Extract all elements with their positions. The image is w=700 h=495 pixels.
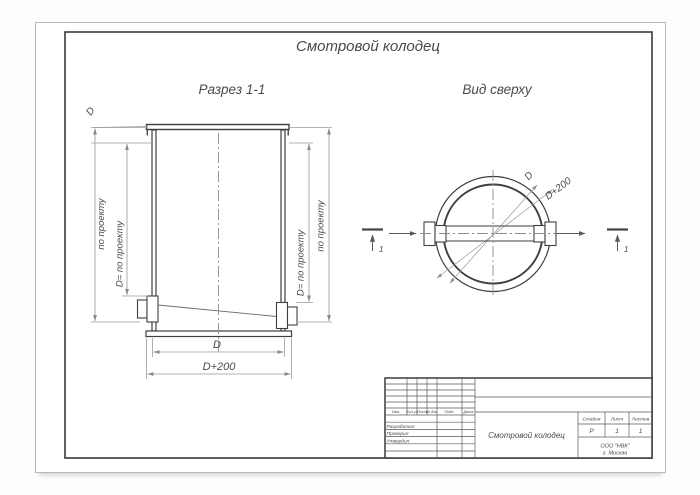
pipe-flange-right (288, 307, 298, 325)
lid-edge-hooks (147, 130, 288, 136)
role-developer: Разработал (387, 424, 415, 430)
org-city: г. Москва (603, 451, 628, 457)
titleblock-doc-name: Смотровой колодец (488, 431, 565, 440)
sheet-value: 1 (615, 428, 619, 435)
plan-dim-label-d200: D+200 (543, 175, 574, 202)
sheets-label: Листов (631, 417, 650, 423)
stage-header: Стадия Лист Листов (583, 417, 650, 423)
channel-slope-line (158, 305, 277, 317)
dim-label-d: D (213, 339, 221, 351)
stage-value: Р (589, 428, 594, 435)
dim-label-right-outer: по проекту (316, 199, 327, 252)
section-mark-left: 1 (362, 230, 383, 255)
organization-cell: ООО "НВК" г. Москва (600, 444, 630, 457)
plan-dim-label-d: D (523, 170, 536, 183)
svg-text:Кол.уч: Кол.уч (406, 410, 417, 414)
title-block: Изм. Кол.уч Лист № док. Подп. Дата Разра… (385, 378, 652, 458)
plan-dim-line-d (450, 185, 537, 283)
pipe-body-left (147, 296, 158, 322)
pipe-flange-left (138, 300, 148, 318)
role-approver: Утвердил (387, 438, 410, 444)
dim-label-d200: D+200 (203, 361, 237, 373)
svg-text:№ док.: № док. (426, 410, 438, 414)
dim-label-left-outer: по проекту (96, 197, 107, 250)
role-checker: Проверил (387, 431, 409, 437)
sheets-value: 1 (639, 428, 643, 435)
org-name: ООО "НВК" (600, 444, 630, 450)
page-title: Смотровой колодец (296, 38, 440, 55)
lid-diameter-label: D (84, 105, 97, 117)
stage-label: Стадия (583, 417, 601, 423)
section-view (138, 125, 298, 353)
plan-view-title: Вид сверху (462, 82, 533, 97)
dim-label-right-inner: D= по проекту (296, 229, 307, 297)
section-mark-left-label: 1 (379, 245, 383, 254)
well-wall-right (281, 130, 285, 331)
drawing-canvas: Смотровой колодец Разрез 1-1 Вид сверху (0, 0, 700, 495)
dim-label-left-inner: D= по проекту (115, 220, 126, 288)
sheet-label: Лист (610, 417, 623, 423)
svg-text:Подп.: Подп. (444, 410, 454, 414)
svg-text:Дата: Дата (462, 410, 473, 414)
pipe-body-right (277, 303, 288, 329)
drawing-page: Смотровой колодец Разрез 1-1 Вид сверху (0, 0, 700, 495)
svg-text:Изм.: Изм. (392, 410, 400, 414)
well-lid (147, 125, 290, 130)
section-mark-right-label: 1 (624, 245, 628, 254)
section-view-title: Разрез 1-1 (199, 82, 266, 97)
section-mark-right: 1 (607, 230, 628, 255)
plan-view: 1 1 (362, 170, 628, 298)
